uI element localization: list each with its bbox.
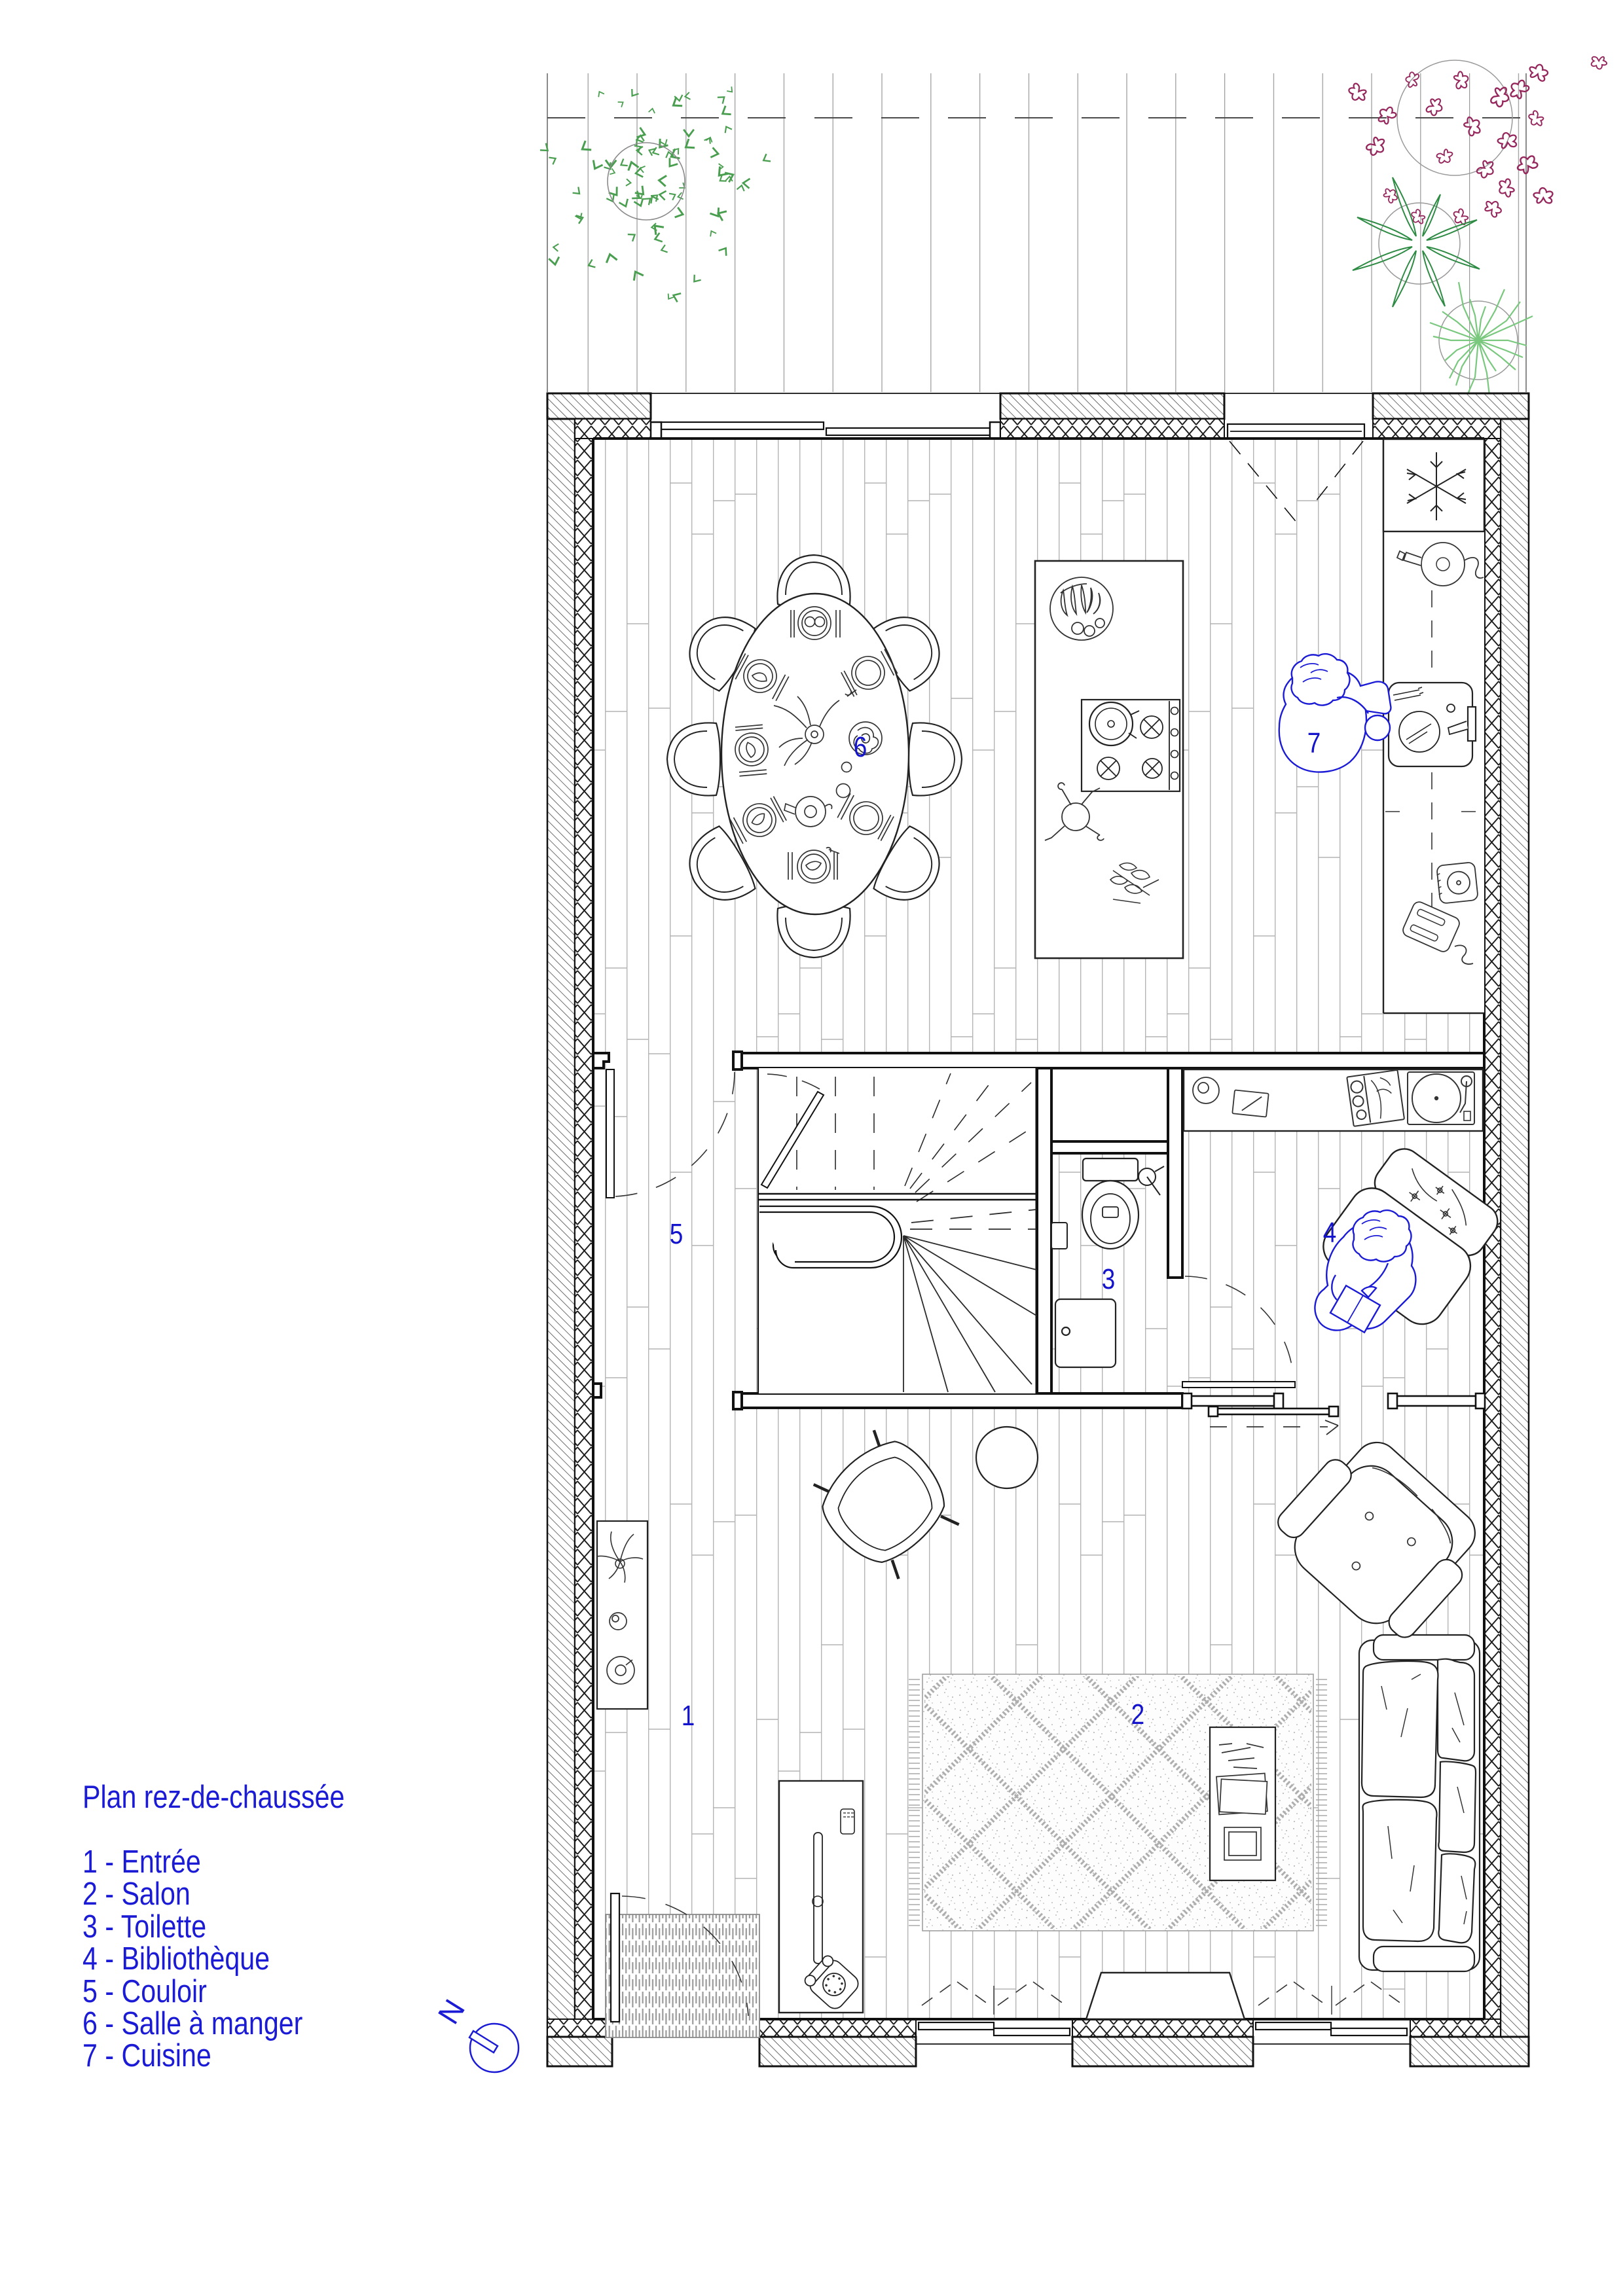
svg-text:3 - Toilette: 3 - Toilette: [82, 1909, 206, 1945]
svg-text:6 - Salle à manger: 6 - Salle à manger: [82, 2005, 302, 2041]
svg-text:Plan rez-de-chaussée: Plan rez-de-chaussée: [82, 1779, 344, 1815]
svg-text:4: 4: [1323, 1216, 1337, 1249]
svg-text:5: 5: [670, 1217, 684, 1250]
svg-text:4 - Bibliothèque: 4 - Bibliothèque: [82, 1941, 270, 1977]
svg-text:1: 1: [682, 1699, 695, 1732]
svg-text:6: 6: [854, 730, 867, 763]
svg-text:7: 7: [1307, 726, 1321, 759]
svg-text:2: 2: [1131, 1698, 1145, 1731]
svg-text:5 - Couloir: 5 - Couloir: [82, 1973, 207, 2009]
svg-text:2 - Salon: 2 - Salon: [82, 1876, 191, 1912]
svg-text:1 - Entrée: 1 - Entrée: [82, 1844, 201, 1880]
svg-text:7 - Cuisine: 7 - Cuisine: [82, 2037, 211, 2073]
svg-text:3: 3: [1102, 1263, 1116, 1295]
